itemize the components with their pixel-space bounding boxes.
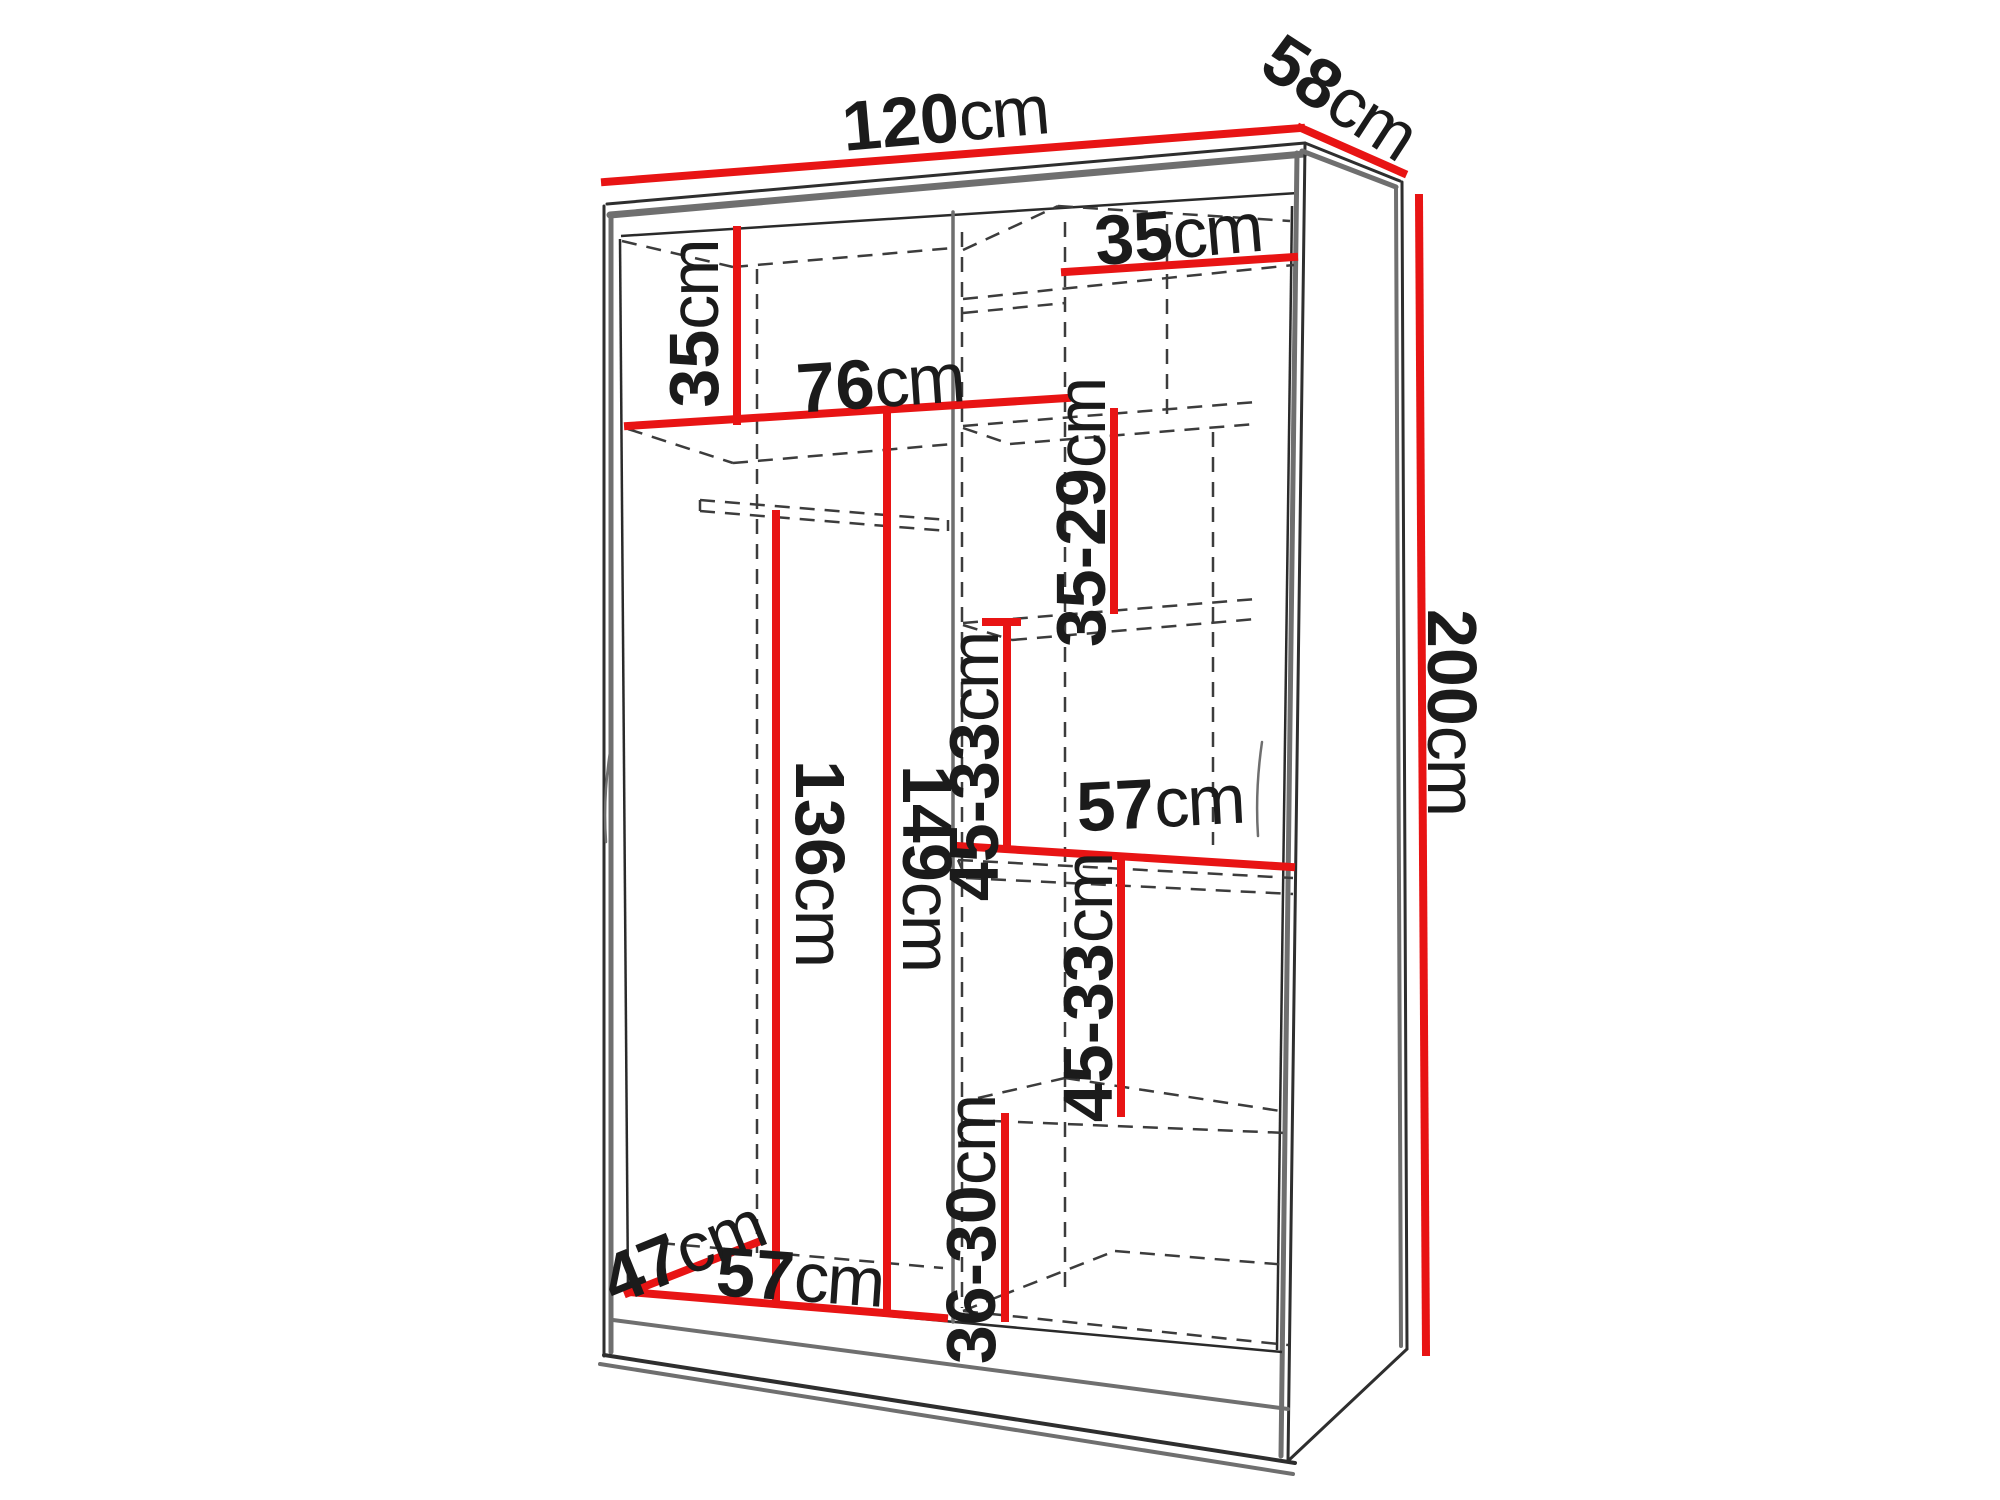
hanging-rod	[700, 500, 948, 531]
label-top-depth: 58cm	[1249, 19, 1432, 175]
label-right-mid-shelf: 57cm	[1074, 760, 1245, 847]
back-right-edge	[1402, 182, 1407, 1349]
bottom-shadow-edge	[600, 1364, 1293, 1474]
right-door-reflection	[1257, 742, 1262, 836]
label-hanging-rod-height: 136cm	[781, 760, 859, 966]
back-right-edge-shade	[1396, 187, 1401, 1346]
left-inner-wall	[620, 239, 628, 1292]
diagram-canvas: 120cm 58cm 200cm 35cm 76cm 35cm 35-29cm …	[0, 0, 2000, 1500]
right-panel-bottom-edge	[1288, 1349, 1407, 1461]
right-niche-verticals	[1167, 224, 1213, 845]
label-right-top-cell: 35cm	[1091, 188, 1264, 280]
wardrobe-dimension-diagram: 120cm 58cm 200cm 35cm 76cm 35cm 35-29cm …	[0, 0, 2000, 1500]
label-left-shelf-width: 76cm	[794, 338, 966, 427]
label-left-top-cell: 35cm	[655, 240, 733, 407]
bottom-outer-edge	[604, 1355, 1295, 1463]
right-floor-edges	[963, 1251, 1288, 1345]
label-right-bottom-cell: 36-30cm	[932, 1096, 1010, 1364]
right-bottom-shelf-edges	[968, 1078, 1287, 1133]
label-bottom-width: 57cm	[714, 1232, 886, 1321]
left-shelf-back-edges	[628, 429, 953, 463]
dimension-labels: 120cm 58cm 200cm 35cm 76cm 35cm 35-29cm …	[591, 19, 1491, 1364]
label-height: 200cm	[1413, 609, 1491, 815]
label-right-cell2: 35-29cm	[1042, 379, 1120, 647]
label-right-cell4: 45-33cm	[1049, 854, 1127, 1122]
label-left-interior-height: 149cm	[888, 765, 966, 971]
